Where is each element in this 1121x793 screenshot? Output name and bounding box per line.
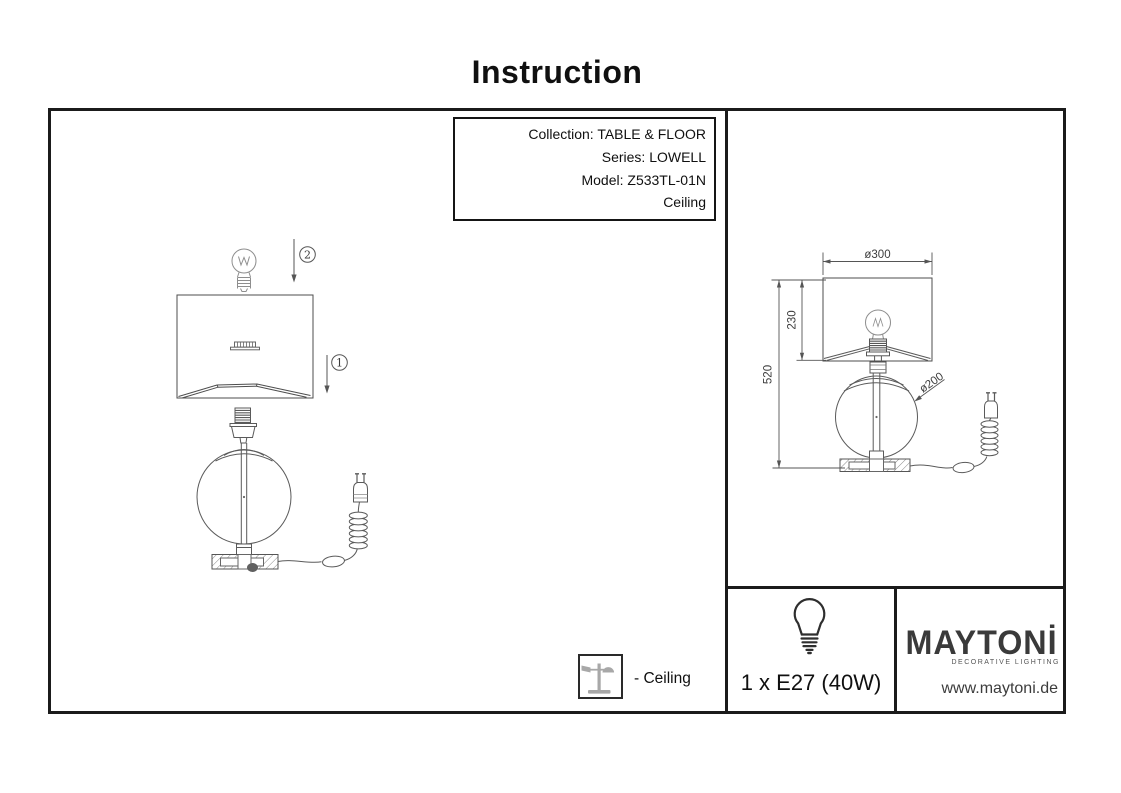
brand-website: www.maytoni.de: [897, 680, 1058, 698]
bulb-spec-label: 1 x E27 (40W): [727, 670, 895, 696]
legend-ceiling-label: - Ceiling: [634, 670, 691, 688]
info-series: Series: LOWELL: [455, 146, 706, 169]
info-mount-type: Ceiling: [455, 191, 706, 214]
legend-icon-box: [578, 654, 623, 699]
page-title: Instruction: [0, 54, 1114, 91]
info-model: Model: Z533TL-01N: [455, 169, 706, 192]
info-collection: Collection: TABLE & FLOOR: [455, 123, 706, 146]
brand-tagline: DECORATIVE LIGHTING: [897, 659, 1060, 666]
instruction-sheet: Instruction Collection: TABLE & FLOOR Se…: [0, 0, 1121, 793]
product-info-box: Collection: TABLE & FLOOR Series: LOWELL…: [453, 117, 716, 221]
frame-vertical-divider: [725, 108, 728, 714]
brand-logo: MAYTONİ: [901, 624, 1062, 663]
